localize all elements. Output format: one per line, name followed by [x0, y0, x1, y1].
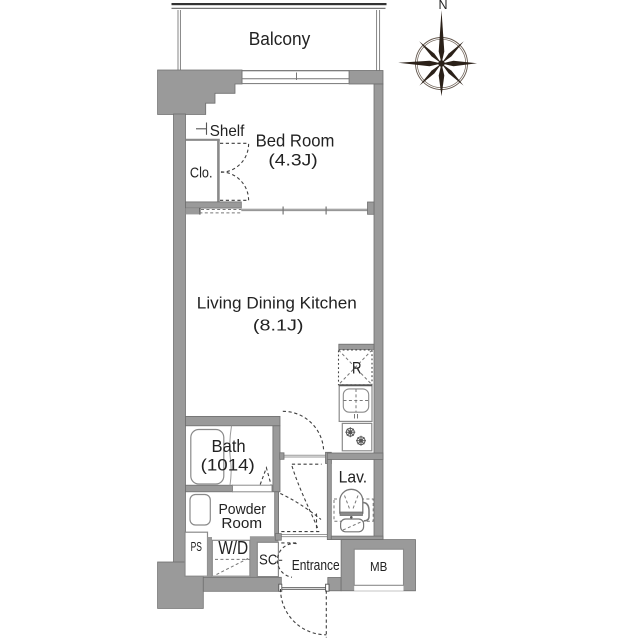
svg-text:N: N	[438, 0, 447, 12]
svg-text:(8.1J): (8.1J)	[253, 318, 304, 335]
svg-text:MB: MB	[370, 560, 387, 574]
svg-text:(1014): (1014)	[201, 455, 255, 474]
svg-text:(4.3J): (4.3J)	[268, 151, 317, 169]
svg-text:Shelf: Shelf	[210, 123, 245, 140]
svg-text:PS: PS	[191, 540, 202, 554]
svg-text:Room: Room	[221, 515, 262, 532]
svg-text:Bed Room: Bed Room	[256, 130, 335, 150]
svg-text:W/D: W/D	[218, 538, 248, 558]
svg-text:Balcony: Balcony	[249, 29, 311, 49]
svg-text:Entrance: Entrance	[292, 557, 340, 574]
svg-text:Clo.: Clo.	[190, 165, 213, 182]
svg-text:Living Dining Kitchen: Living Dining Kitchen	[197, 294, 357, 313]
svg-text:SC: SC	[259, 553, 278, 569]
svg-text:Bath: Bath	[212, 436, 246, 456]
svg-text:Lav.: Lav.	[339, 467, 368, 486]
svg-text:R: R	[352, 360, 362, 378]
